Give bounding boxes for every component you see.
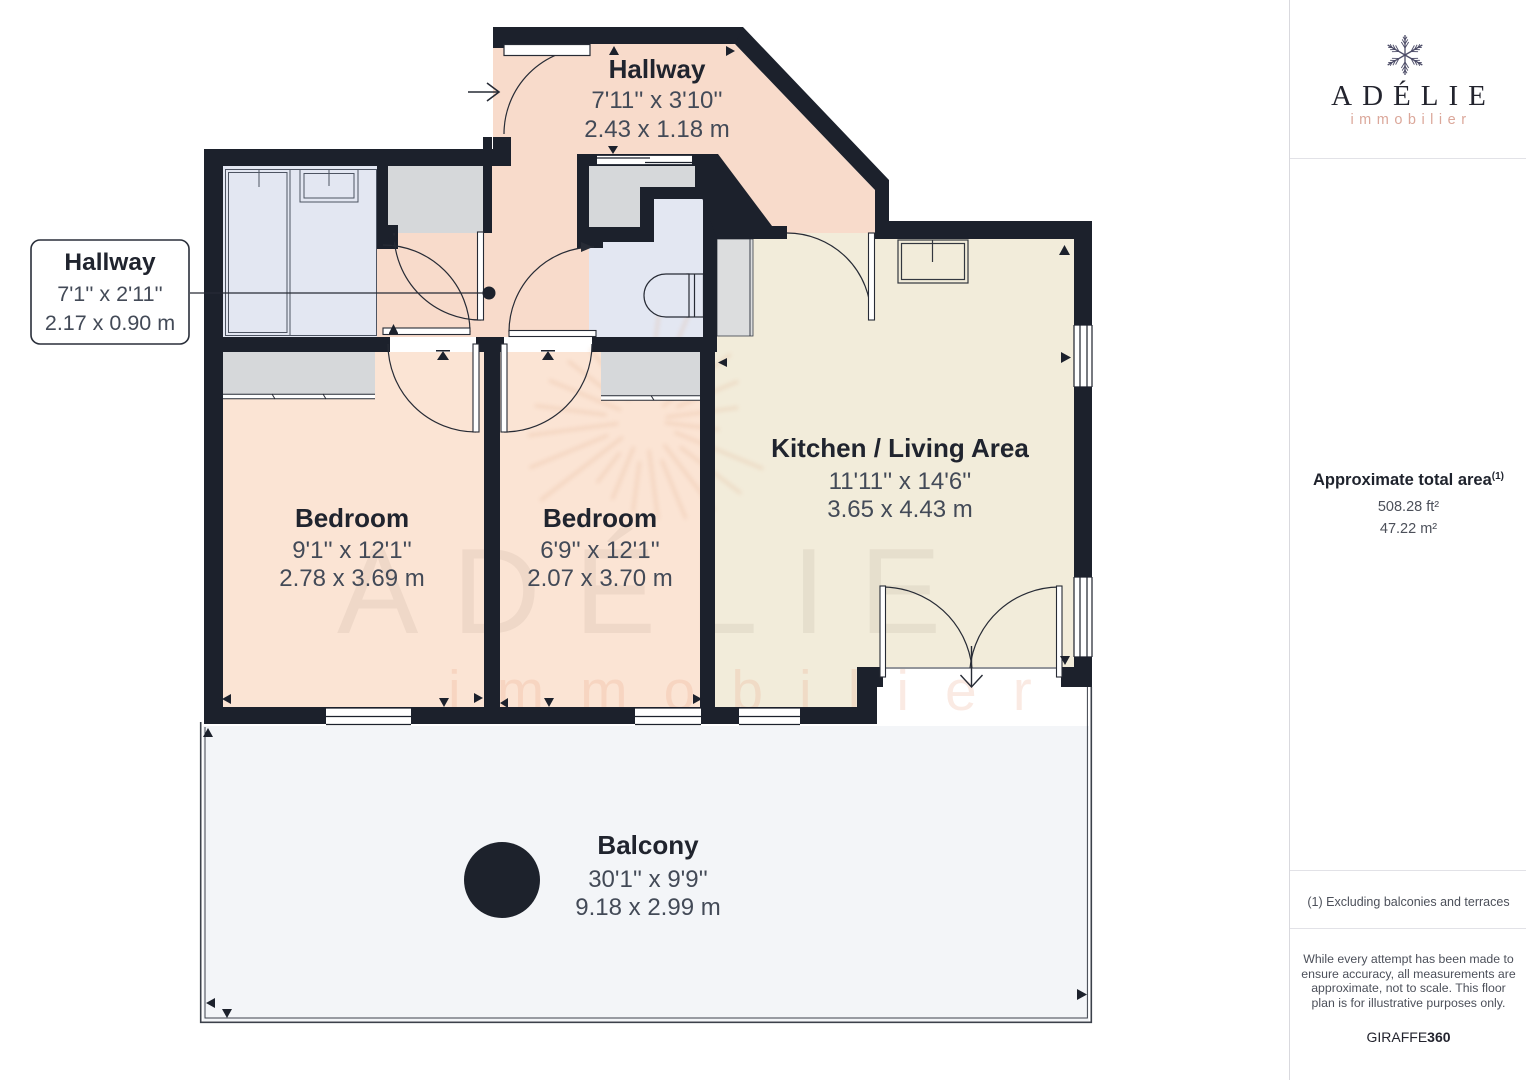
svg-text:11'11'' x 14'6'': 11'11'' x 14'6'' bbox=[829, 468, 972, 495]
svg-text:30'1'' x 9'9'': 30'1'' x 9'9'' bbox=[588, 866, 708, 893]
svg-text:2.17 x 0.90 m: 2.17 x 0.90 m bbox=[45, 311, 175, 335]
svg-text:7'11'' x 3'10'': 7'11'' x 3'10'' bbox=[591, 87, 722, 114]
svg-text:2.43 x 1.18 m: 2.43 x 1.18 m bbox=[584, 116, 729, 143]
svg-text:2.07 x 3.70 m: 2.07 x 3.70 m bbox=[527, 565, 672, 592]
svg-text:3.65 x 4.43 m: 3.65 x 4.43 m bbox=[827, 496, 972, 523]
svg-text:9.18 x 2.99 m: 9.18 x 2.99 m bbox=[575, 894, 720, 921]
svg-text:Bedroom: Bedroom bbox=[295, 503, 409, 533]
svg-text:Balcony: Balcony bbox=[597, 830, 699, 860]
svg-text:Hallway: Hallway bbox=[64, 249, 156, 276]
svg-text:6'9'' x 12'1'': 6'9'' x 12'1'' bbox=[540, 537, 660, 564]
svg-text:9'1'' x 12'1'': 9'1'' x 12'1'' bbox=[292, 537, 412, 564]
svg-text:2.78 x 3.69 m: 2.78 x 3.69 m bbox=[279, 565, 424, 592]
svg-text:Hallway: Hallway bbox=[609, 54, 706, 84]
svg-text:Bedroom: Bedroom bbox=[543, 503, 657, 533]
svg-text:7'1'' x 2'11'': 7'1'' x 2'11'' bbox=[57, 282, 163, 306]
svg-text:Kitchen / Living Area: Kitchen / Living Area bbox=[771, 433, 1029, 463]
